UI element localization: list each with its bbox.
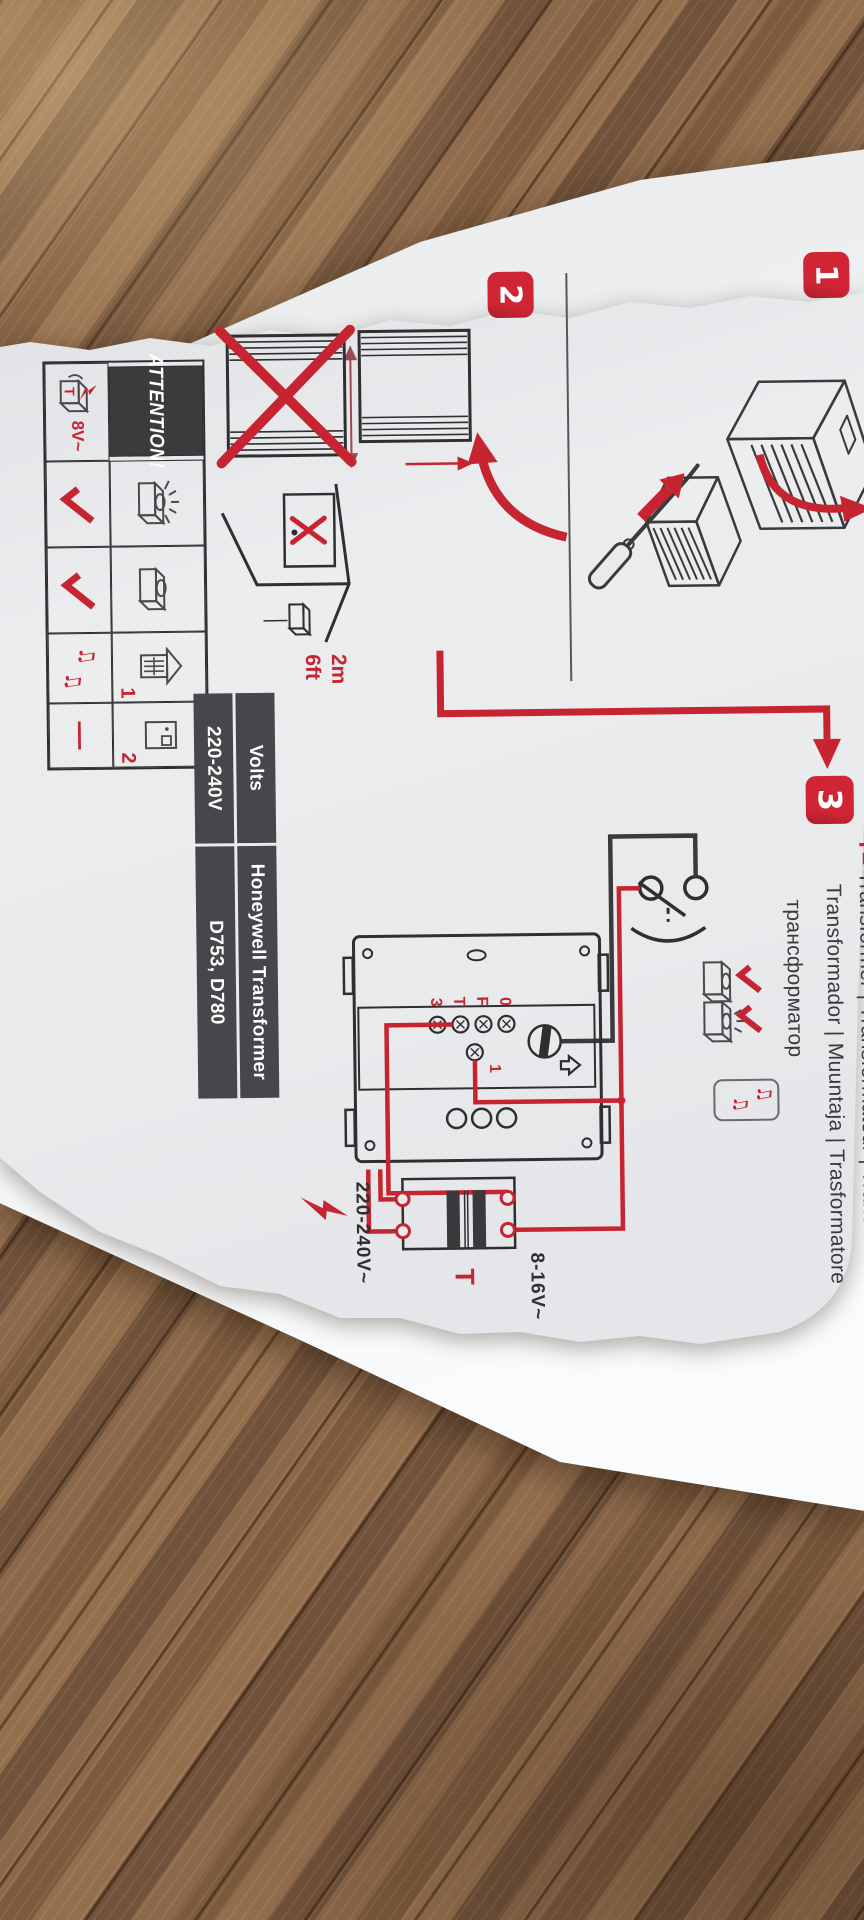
enclosure-prohibited-diagram: [222, 484, 350, 644]
melody-notes-icon: ♫: [74, 644, 101, 666]
check-icon: [740, 1007, 760, 1031]
cover-removal-arrow-icon: [760, 453, 864, 522]
voltage-8v-label: 8V~: [67, 421, 87, 452]
chime-ringing-cell: [110, 460, 205, 547]
check-cell-1: [46, 461, 111, 548]
flat-surface-icon: [359, 330, 470, 441]
uneven-surface-crossed-icon: [220, 330, 352, 464]
lightning-icon: [80, 384, 97, 399]
step2-badge: 2: [487, 272, 534, 319]
step2-to-step3-arrow-icon: [422, 631, 854, 806]
terminal-label-0: 0: [496, 997, 513, 1006]
chime-ringing-icon: [704, 1002, 744, 1041]
chime-exploded-diagram: [564, 325, 864, 629]
distance-label-feet: 6ft: [300, 654, 324, 680]
chime-plain-cell: [111, 546, 206, 633]
transformer-8v-icon: T: [54, 372, 99, 419]
transformer-letter: T: [62, 387, 78, 396]
lightning-icon: [301, 1197, 348, 1221]
t-prefix: T=: [854, 837, 864, 865]
melody-notes-icon: ♫: [60, 669, 87, 691]
door2-number: 2: [116, 752, 139, 763]
step3-badge: 3: [805, 776, 854, 825]
mounting-up-arrow-icon: [406, 456, 474, 471]
check-icon: [740, 967, 760, 991]
check-cell-2: [47, 547, 112, 634]
attention-title: ATTENTION!: [108, 365, 203, 456]
transformer-t-label: T: [449, 1268, 479, 1285]
transformer-symbol: [396, 1178, 515, 1249]
volts-table: Volts Honeywell Transformer 220-240V D75…: [193, 693, 279, 1099]
secondary-voltage-label: 8-16V~: [526, 1252, 548, 1320]
terminal-label-t: T: [450, 997, 467, 1007]
transformer-8v-cell: T 8V~: [44, 363, 109, 462]
push-button-icon: [631, 876, 708, 941]
leaflet-content: 1: [2, 165, 864, 1341]
terminal-label-3: 3: [427, 998, 444, 1007]
language-line-2: Transformador | Muuntaja | Trasformatore: [821, 884, 850, 1285]
transformer-header-cell: Honeywell Transformer: [237, 846, 279, 1098]
distance-label-meters: 2m: [326, 654, 350, 685]
step1-badge: 1: [803, 252, 850, 299]
single-tone-dash: —: [67, 721, 95, 749]
selector-arrow-icon: [561, 1056, 580, 1074]
check-icon: [59, 567, 100, 613]
step1-to-step2-arrow-icon: [467, 431, 566, 538]
language-line-1-text: Transformer | Transformateur | Transform…: [855, 871, 864, 1305]
chime-ringing-icon: [131, 471, 184, 536]
volts-value-cell: 220-240V: [193, 693, 234, 843]
single-tone-cell: —: [49, 703, 114, 769]
door1-number: 1: [115, 687, 138, 698]
wiring-diagram: 0 F T 3 1 8-16V~ T 220-240V~: [270, 796, 796, 1337]
language-line-1: T=Transformer | Transformateur | Transfo…: [853, 837, 864, 1306]
chime-icon: [704, 962, 730, 1001]
models-value-cell: D753, D780: [195, 846, 237, 1098]
primary-voltage-label: 220-240V~: [351, 1182, 373, 1285]
front-door-cell: 1: [112, 632, 207, 703]
terminal-label-f: F: [473, 996, 490, 1006]
chime-icon: [132, 557, 185, 622]
pry-point-arrow-icon: [631, 464, 694, 527]
volts-header-cell: Volts: [235, 693, 276, 843]
melody-notes-cell: ♫ ♫: [48, 633, 113, 704]
second-door-icon: [136, 715, 184, 754]
front-door-icon: [133, 647, 185, 688]
photo-frame: 1: [0, 0, 864, 1920]
check-icon: [58, 481, 99, 527]
rotary-selector-icon: [528, 1025, 580, 1075]
attention-table: ATTENTION!: [42, 360, 209, 771]
wire-label-1: 1: [486, 1064, 503, 1073]
